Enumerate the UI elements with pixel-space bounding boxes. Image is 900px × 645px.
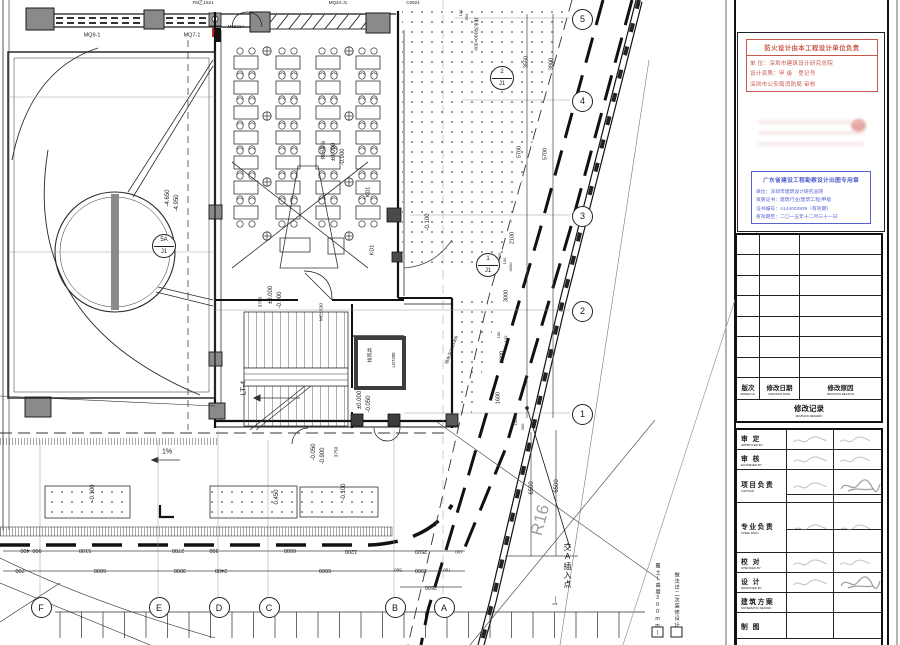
personnel-row: 设 计DESIGNED BY xyxy=(737,573,881,593)
personnel-row: 审 定APPROVED BY xyxy=(737,430,881,450)
license-stamp: 广东省建设工程勘察设计出图专用章 单位：深圳市建筑设计研究总院 资质证书：建筑行… xyxy=(751,171,871,224)
revision-col-reason: 修改原因 REVISION REASON xyxy=(800,378,881,399)
fire-approval-stamp: 防火设计由本工程设计单位负责 单 位：深圳市建筑设计研究总院 设计资质：甲 级 … xyxy=(746,39,878,92)
revision-empty-row xyxy=(737,276,881,296)
personnel-row: 校 对CHECKED BY xyxy=(737,553,881,573)
revision-table: 版次 ORDER No. 修改日期 REVISION DATE 修改原因 REV… xyxy=(735,233,883,423)
revision-remark: 修改记录 REVISION REMARK xyxy=(737,400,881,421)
personnel-row: 审 核EXAMINED BY xyxy=(737,450,881,470)
top-wall xyxy=(26,8,396,42)
revision-empty-row xyxy=(737,358,881,378)
stamp-area: 防火设计由本工程设计单位负责 单 位：深圳市建筑设计研究总院 设计资质：甲 级 … xyxy=(737,32,885,232)
revision-col-order: 版次 ORDER No. xyxy=(737,378,760,399)
revision-empty-row xyxy=(737,317,881,337)
dotted-paving xyxy=(402,11,566,420)
personnel-table: 审 定APPROVED BY审 核EXAMINED BY项目负责CAPTAIN专… xyxy=(735,428,883,645)
personnel-row: 建筑方案SCHEMATIC DESIGN xyxy=(737,593,881,613)
revision-empty-row xyxy=(737,255,881,275)
classroom-tables xyxy=(234,47,380,240)
personnel-row: 制 图 xyxy=(737,613,881,639)
stair-lt4 xyxy=(244,312,348,430)
faint-stamp xyxy=(748,113,874,159)
revision-empty-row xyxy=(737,296,881,316)
revision-empty-row xyxy=(737,337,881,357)
floor-plan-sheet: FM乙1521M1521AMQ24-J1C0924MQ9-1MQ7-1-4.65… xyxy=(0,0,900,645)
revision-col-date: 修改日期 REVISION DATE xyxy=(760,378,800,399)
personnel-row: 项目负责CAPTAIN xyxy=(737,470,881,503)
personnel-row: 专业负责CHIEF ENGI. xyxy=(737,503,881,553)
revision-empty-row xyxy=(737,235,881,255)
site-south xyxy=(0,458,452,546)
basketball-court xyxy=(0,40,218,445)
stamp-title: 防火设计由本工程设计单位负责 xyxy=(747,40,877,56)
